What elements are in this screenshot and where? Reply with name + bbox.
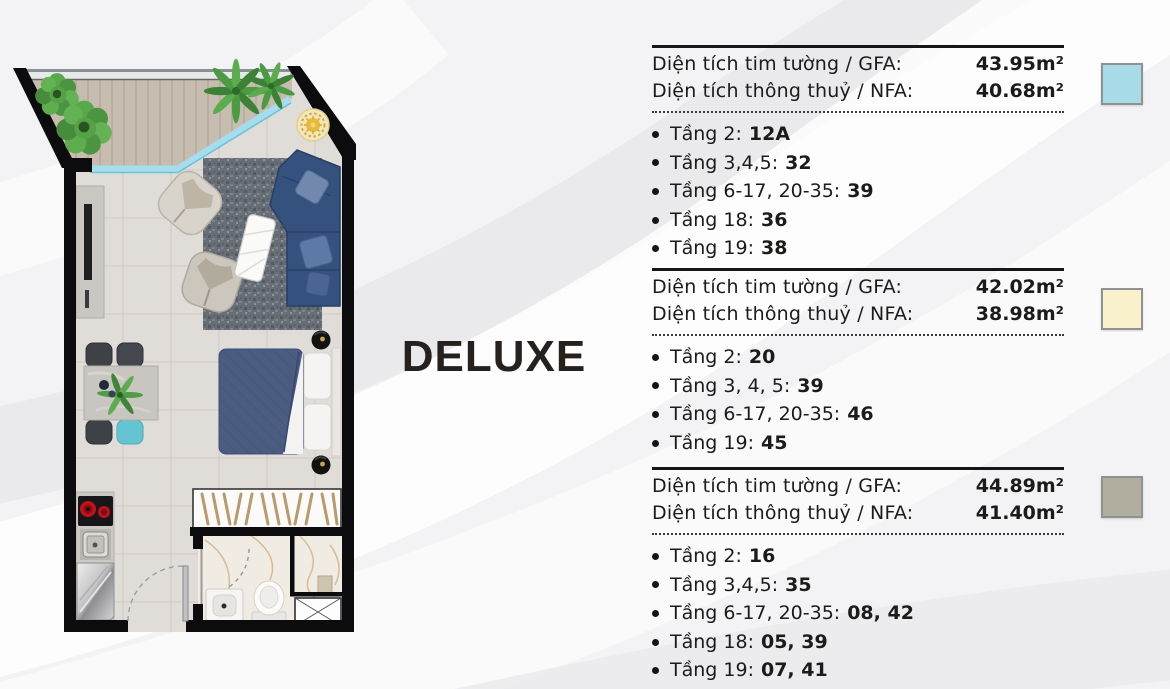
floor-item: Tầng 6-17, 20-35:39 [652,177,1064,206]
sun-ornament-icon [297,109,329,141]
bathroom [198,532,346,628]
nfa-row: Diện tích thông thuỷ / NFA: 38.98m² [652,301,1064,328]
floor-item: Tầng 3,4,5:32 [652,149,1064,178]
nfa-row: Diện tích thông thuỷ / NFA: 41.40m² [652,500,1064,527]
floor-item: Tầng 2:12A [652,120,1064,149]
floor-item: Tầng 2:16 [652,542,1064,571]
legend-swatch-gray [1101,476,1143,518]
gfa-value: 42.02m² [976,274,1064,301]
floor-item: Tầng 18:36 [652,206,1064,235]
area-summary: Diện tích tim tường / GFA: 44.89m² Diện … [652,467,1064,535]
gfa-value: 44.89m² [976,473,1064,500]
floor-item: Tầng 19:07, 41 [652,656,1064,685]
legend-swatch-yellow [1101,288,1143,330]
gfa-label: Diện tích tim tường / GFA: [652,473,902,500]
spec-section-3: Diện tích tim tường / GFA: 44.89m² Diện … [652,467,1064,685]
floor-item: Tầng 6-17, 20-35:08, 42 [652,599,1064,628]
floor-item: Tầng 3, 4, 5:39 [652,372,1064,401]
spec-section-2: Diện tích tim tường / GFA: 42.02m² Diện … [652,268,1064,457]
floor-list: Tầng 2:16 Tầng 3,4,5:35 Tầng 6-17, 20-35… [652,535,1064,685]
nfa-label: Diện tích thông thuỷ / NFA: [652,78,913,105]
nfa-value: 41.40m² [976,500,1064,527]
floor-item: Tầng 6-17, 20-35:46 [652,400,1064,429]
floor-item: Tầng 3,4,5:35 [652,571,1064,600]
dining-chair [117,343,143,367]
kitchen [76,492,114,622]
tv-icon [84,204,92,280]
area-summary: Diện tích tim tường / GFA: 42.02m² Diện … [652,268,1064,336]
floor-plan-drawing [13,54,356,632]
floor-item: Tầng 2:20 [652,343,1064,372]
tv-console [76,186,104,318]
nfa-label: Diện tích thông thuỷ / NFA: [652,500,913,527]
dining-chair [86,343,112,367]
gfa-row: Diện tích tim tường / GFA: 44.89m² [652,473,1064,500]
legend-swatch-blue [1101,63,1143,105]
wardrobe [193,489,341,528]
kitchen-sink-icon [80,529,111,560]
cooktop-icon [78,496,113,526]
nfa-value: 40.68m² [976,78,1064,105]
headboard [332,348,341,456]
floor-item: Tầng 19:45 [652,429,1064,458]
dining-chair [86,420,112,444]
nfa-label: Diện tích thông thuỷ / NFA: [652,301,913,328]
gfa-label: Diện tích tim tường / GFA: [652,274,902,301]
pillow [304,353,331,399]
dining-chair [117,420,143,444]
nfa-row: Diện tích thông thuỷ / NFA: 40.68m² [652,78,1064,105]
floor-list: Tầng 2:20 Tầng 3, 4, 5:39 Tầng 6-17, 20-… [652,336,1064,457]
floor-item: Tầng 18:05, 39 [652,628,1064,657]
bath-shelf [318,576,332,594]
nightstand-icon [312,331,331,350]
unit-type-title: DELUXE [396,332,592,382]
gfa-label: Diện tích tim tường / GFA: [652,51,902,78]
gfa-value: 43.95m² [976,51,1064,78]
gfa-row: Diện tích tim tường / GFA: 42.02m² [652,274,1064,301]
gfa-row: Diện tích tim tường / GFA: 43.95m² [652,51,1064,78]
floor-item: Tầng 19:38 [652,234,1064,263]
spec-section-1: Diện tích tim tường / GFA: 43.95m² Diện … [652,45,1064,263]
nightstand-icon [312,456,331,475]
brochure-page: DELUXE Diện tích tim tường / GFA: 43.95m… [0,0,1170,689]
nfa-value: 38.98m² [976,301,1064,328]
area-summary: Diện tích tim tường / GFA: 43.95m² Diện … [652,45,1064,113]
pillow [304,404,331,450]
floor-list: Tầng 2:12A Tầng 3,4,5:32 Tầng 6-17, 20-3… [652,113,1064,263]
